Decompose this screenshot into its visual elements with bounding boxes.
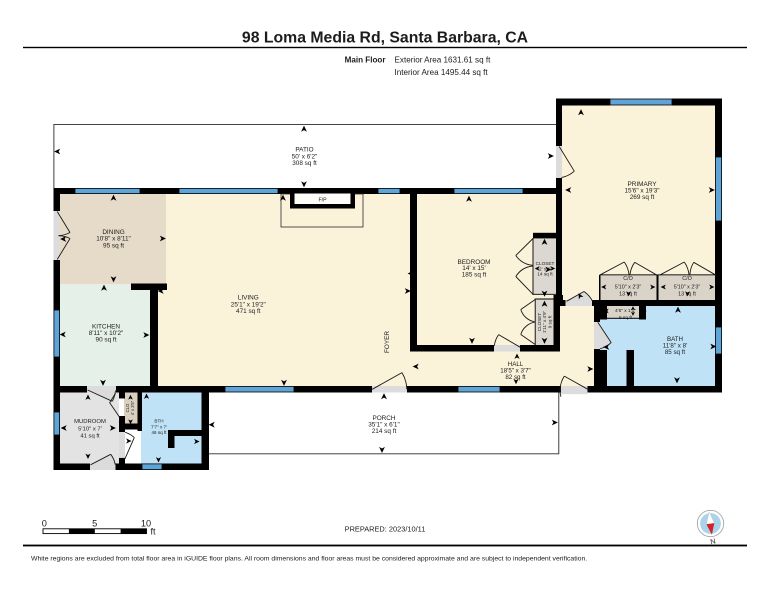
svg-text:F/P: F/P [318,198,327,204]
svg-text:CLOSET: CLOSET [537,313,542,332]
svg-text:214 sq ft: 214 sq ft [372,428,397,435]
svg-text:5'10" x 2'3": 5'10" x 2'3" [674,285,701,291]
svg-text:471 sq ft: 471 sq ft [236,308,261,315]
svg-text:98 Loma Media Rd, Santa Barbar: 98 Loma Media Rd, Santa Barbara, CA [242,30,528,47]
svg-text:White regions are excluded fro: White regions are excluded from total fl… [31,556,587,563]
svg-text:269 sq ft: 269 sq ft [630,194,655,201]
svg-text:Main Floor: Main Floor [345,55,387,64]
svg-text:85 sq ft: 85 sq ft [665,349,686,356]
svg-text:46 sq ft: 46 sq ft [151,430,167,435]
svg-text:4' x 3'5": 4' x 3'5" [130,400,135,415]
svg-text:5: 5 [92,518,97,528]
svg-text:41 sq ft: 41 sq ft [80,434,100,440]
svg-text:308 sq ft: 308 sq ft [292,160,317,167]
svg-text:5'10" x 7': 5'10" x 7' [78,426,102,432]
svg-text:ft: ft [151,527,157,537]
svg-text:1'11" x 4'9": 1'11" x 4'9" [542,310,547,333]
svg-text:Exterior Area 1631.61 sq ft: Exterior Area 1631.61 sq ft [395,55,492,64]
svg-text:BTH: BTH [154,419,163,424]
svg-text:14 sq ft: 14 sq ft [537,272,553,277]
svg-text:C/O: C/O [623,276,633,282]
svg-text:C/O: C/O [682,276,692,282]
svg-text:0: 0 [42,518,47,528]
svg-text:Interior Area 1495.44 sq ft: Interior Area 1495.44 sq ft [395,68,489,77]
svg-text:CLOSET: CLOSET [536,261,555,266]
svg-text:MUDROOM: MUDROOM [74,419,106,425]
svg-text:90 sq ft: 90 sq ft [96,337,117,344]
svg-text:95 sq ft: 95 sq ft [103,242,124,249]
svg-text:PREPARED: 2023/10/11: PREPARED: 2023/10/11 [345,524,426,533]
svg-text:9 sq ft: 9 sq ft [548,315,553,328]
svg-text:7'7" x 7': 7'7" x 7' [151,424,167,429]
svg-text:2' x 6': 2' x 6' [539,266,551,271]
svg-text:185 sq ft: 185 sq ft [462,272,487,279]
svg-text:5 sq ft: 5 sq ft [619,315,633,321]
svg-text:FOYER: FOYER [384,331,391,353]
svg-text:5'10" x 2'3": 5'10" x 2'3" [615,285,642,291]
